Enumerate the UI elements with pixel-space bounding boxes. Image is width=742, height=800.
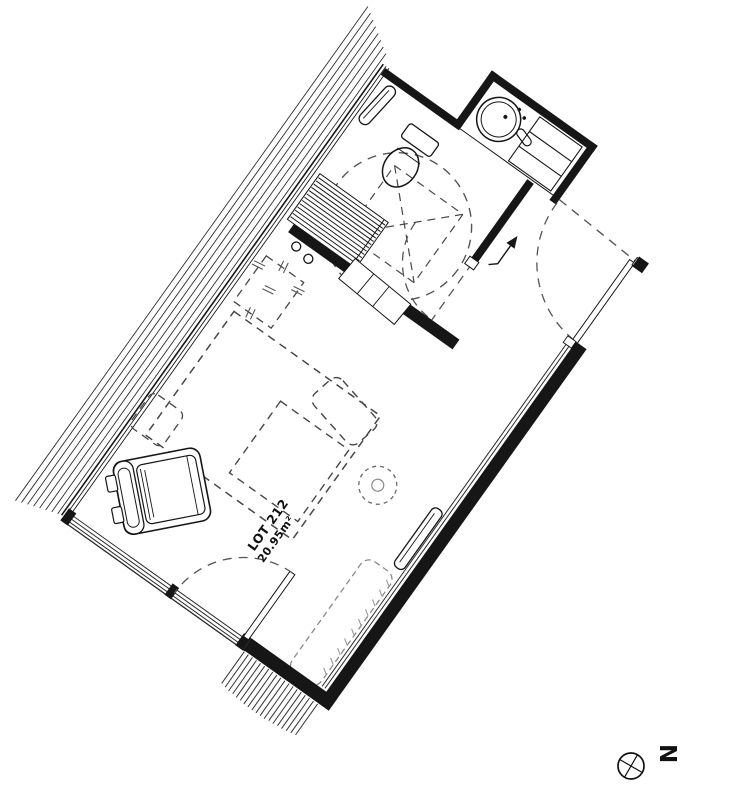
right-wall-corner — [632, 257, 649, 274]
entry-door — [495, 201, 644, 351]
right-wall — [318, 342, 586, 711]
newel-post — [302, 253, 315, 266]
bathroom-top-wall — [381, 68, 464, 130]
armchair — [103, 446, 212, 537]
lot-label: LOT 212 20.95m² — [242, 496, 303, 565]
pillow-outline — [308, 374, 380, 449]
entry-threshold — [556, 200, 640, 262]
bottom-window-band — [61, 511, 251, 650]
floor-plan: LOT 212 20.95m² — [0, 0, 687, 747]
north-compass-icon: N — [614, 744, 680, 783]
left-wall — [62, 64, 389, 519]
floor-plan-page: LOT 212 20.95m² N — [0, 0, 742, 800]
entry-partition-wall — [470, 179, 533, 263]
stair-landing — [339, 259, 411, 325]
kitchenette-tick-marks — [225, 246, 313, 336]
staircase — [287, 174, 388, 268]
newel-post — [290, 240, 303, 253]
north-letter: N — [654, 744, 680, 763]
right-window — [322, 343, 570, 689]
ceiling-light-symbol — [351, 459, 404, 512]
floor-plan-canvas: LOT 212 20.95m² N — [0, 0, 742, 800]
toilet — [374, 123, 440, 195]
nightstand-outline — [128, 391, 185, 448]
